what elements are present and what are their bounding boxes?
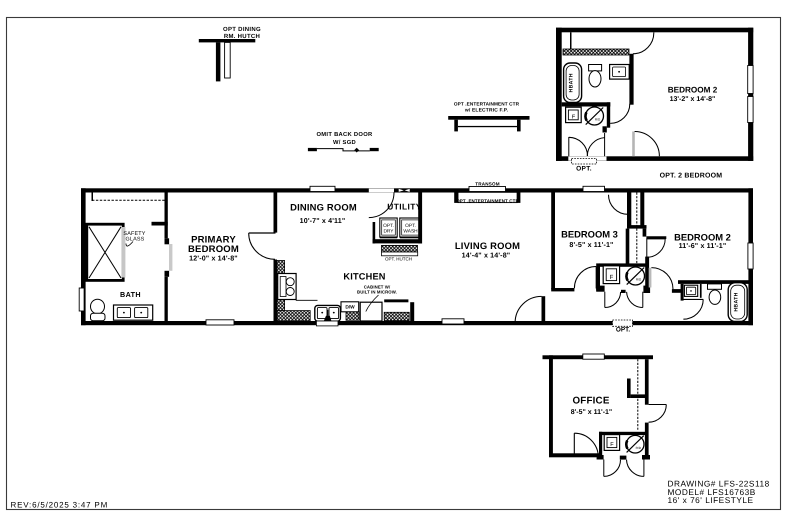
svg-text:BUILT IN MICROW.: BUILT IN MICROW. [357,290,397,295]
svg-text:TRANSOM: TRANSOM [475,182,500,187]
svg-text:R/D: R/D [636,278,642,282]
svg-text:F: F [572,115,576,121]
svg-text:8'-5" x 11'-1": 8'-5" x 11'-1" [569,241,613,249]
svg-text:BEDROOM: BEDROOM [188,244,239,255]
svg-text:KITCHEN: KITCHEN [343,272,385,282]
svg-text:12'-0" x 14'-8": 12'-0" x 14'-8" [189,255,238,263]
svg-text:HBATH: HBATH [734,292,740,311]
svg-text:OMIT BACK DOOR: OMIT BACK DOOR [316,131,373,138]
svg-text:OPT. HUTCH: OPT. HUTCH [385,257,412,262]
svg-text:13'-2" x 14'-8": 13'-2" x 14'-8" [670,96,716,103]
svg-text:R/D: R/D [595,118,601,122]
svg-text:10'-7" x 4'11": 10'-7" x 4'11" [300,217,346,225]
svg-text:BEDROOM 3: BEDROOM 3 [561,229,618,240]
svg-text:UTILITY: UTILITY [387,202,421,212]
svg-text:w/ ELECTRIC F.P.: w/ ELECTRIC F.P. [464,108,509,114]
svg-text:WASH: WASH [403,228,418,234]
svg-text:OPT DINING: OPT DINING [223,26,261,33]
svg-text:REV:6/5/2025 3:47 PM: REV:6/5/2025 3:47 PM [11,500,109,509]
svg-text:BEDROOM 2: BEDROOM 2 [674,232,731,243]
svg-text:OPT.: OPT. [383,223,394,229]
svg-text:LIVING ROOM: LIVING ROOM [455,240,520,251]
svg-text:OPT. 2 BEDROOM: OPT. 2 BEDROOM [660,173,723,180]
svg-text:DINING ROOM: DINING ROOM [290,202,357,213]
svg-text:DRY: DRY [383,228,394,234]
svg-text:OPT .ENTERTAINMENT CTR: OPT .ENTERTAINMENT CTR [456,198,519,203]
svg-text:11'-6" x 11'-1": 11'-6" x 11'-1" [679,242,727,250]
svg-text:R/D: R/D [636,446,642,450]
svg-text:RM. HUTCH: RM. HUTCH [224,33,260,40]
svg-text:OPT .ENTERTAINMENT CTR: OPT .ENTERTAINMENT CTR [454,101,520,106]
svg-text:W/ SGD: W/ SGD [333,139,356,146]
svg-text:14'-4" x 14'-8": 14'-4" x 14'-8" [462,252,511,260]
svg-text:F: F [610,442,614,448]
svg-text:BEDROOM 2: BEDROOM 2 [668,86,718,95]
svg-text:F: F [610,274,614,281]
svg-text:OPT.: OPT. [405,223,416,229]
svg-text:BATH: BATH [120,290,141,299]
svg-text:OPT.: OPT. [616,327,630,334]
svg-text:HBATH: HBATH [569,73,575,92]
svg-text:16' x 76' LIFESTYLE: 16' x 76' LIFESTYLE [668,495,754,505]
svg-text:GLASS: GLASS [126,236,145,242]
svg-text:OFFICE: OFFICE [572,396,609,407]
svg-text:8'-5" x 11'-1": 8'-5" x 11'-1" [571,409,613,416]
svg-text:OPT.: OPT. [576,166,592,173]
svg-text:D/W: D/W [345,305,355,311]
